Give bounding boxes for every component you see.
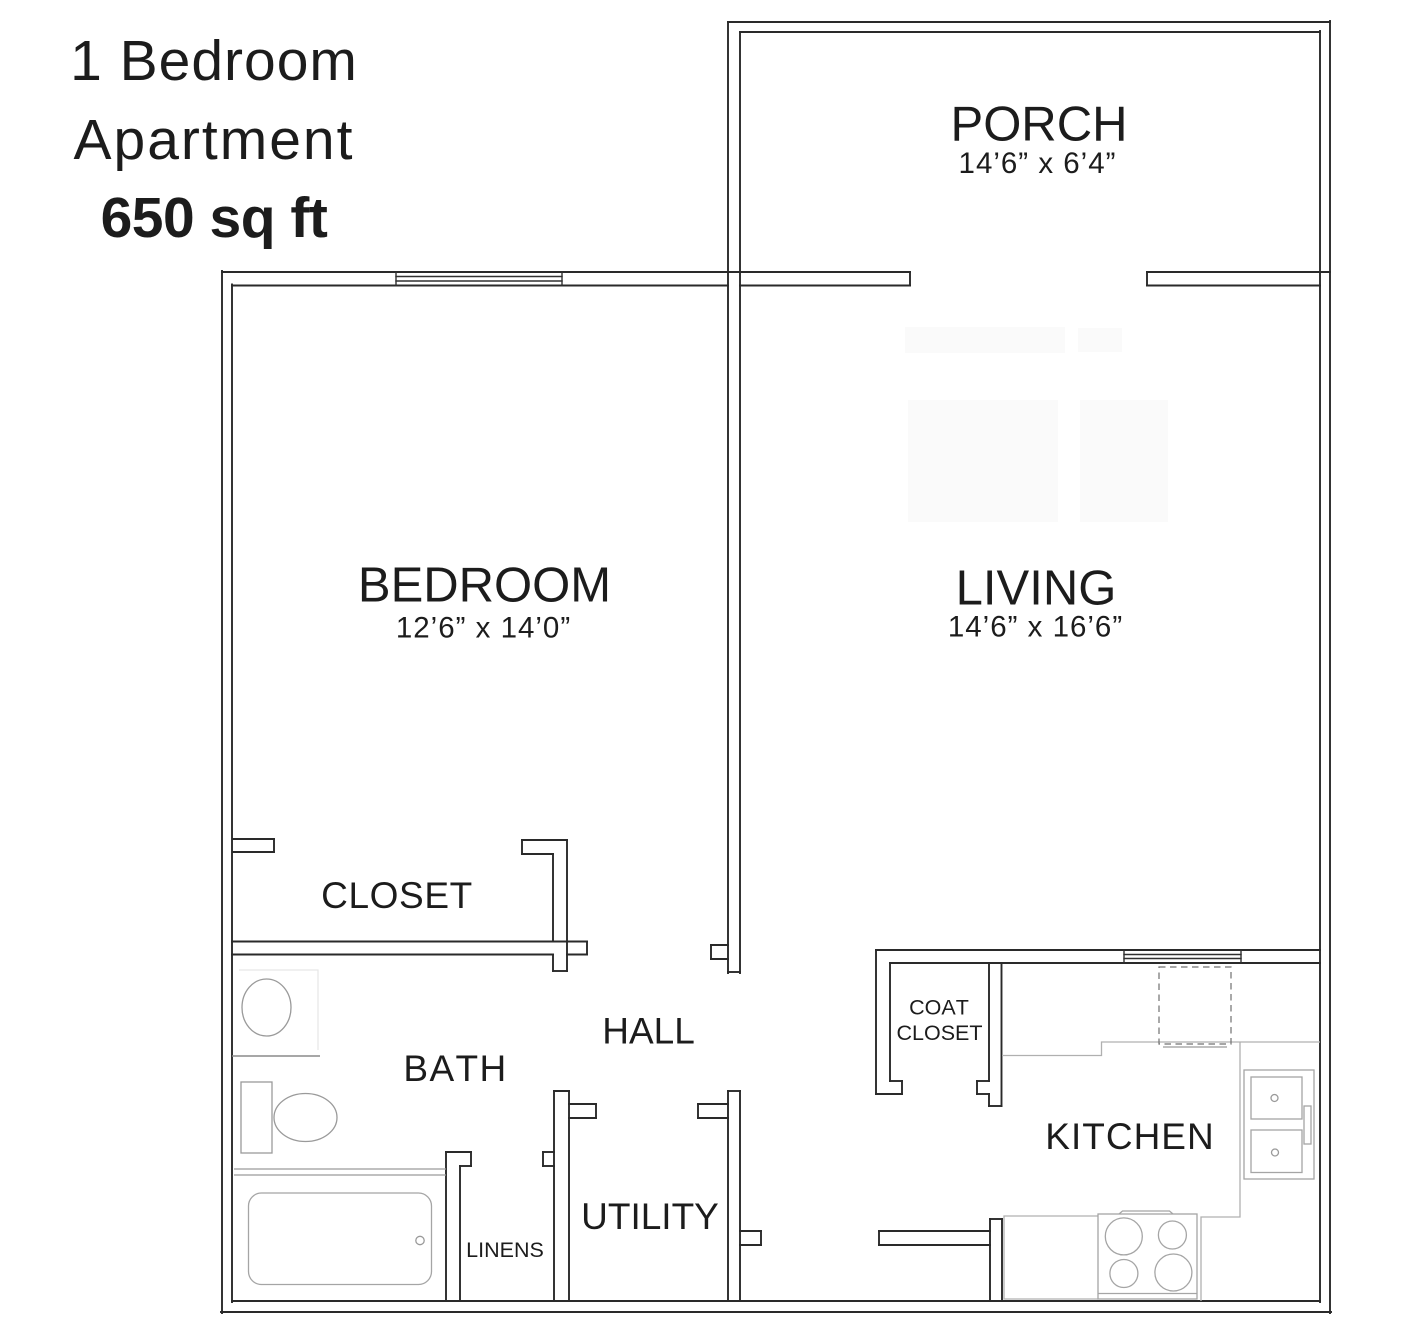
- svg-text:PORCH: PORCH: [951, 98, 1128, 152]
- svg-text:BEDROOM: BEDROOM: [358, 559, 611, 613]
- svg-text:KITCHEN: KITCHEN: [1045, 1116, 1214, 1157]
- svg-text:1 Bedroom: 1 Bedroom: [70, 29, 358, 93]
- svg-text:Apartment: Apartment: [74, 108, 355, 172]
- svg-text:UTILITY: UTILITY: [581, 1196, 719, 1237]
- svg-text:LIVING: LIVING: [956, 562, 1117, 616]
- svg-text:BATH: BATH: [403, 1048, 507, 1089]
- svg-text:CLOSET: CLOSET: [896, 1021, 982, 1045]
- svg-text:LINENS: LINENS: [466, 1238, 544, 1262]
- svg-text:650 sq ft: 650 sq ft: [101, 186, 328, 250]
- svg-text:14’6” x 16’6”: 14’6” x 16’6”: [948, 611, 1123, 644]
- svg-text:12’6” x 14’0”: 12’6” x 14’0”: [396, 612, 571, 645]
- svg-text:COAT: COAT: [909, 996, 969, 1020]
- svg-text:14’6” x 6’4”: 14’6” x 6’4”: [959, 147, 1117, 180]
- svg-text:HALL: HALL: [602, 1011, 695, 1052]
- svg-text:CLOSET: CLOSET: [321, 875, 473, 916]
